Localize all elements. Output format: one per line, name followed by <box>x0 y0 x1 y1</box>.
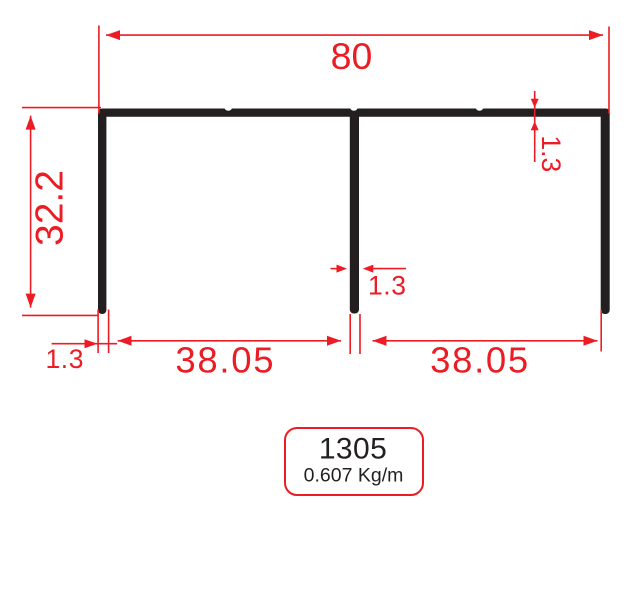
svg-text:0.607 Kg/m: 0.607 Kg/m <box>304 465 404 487</box>
svg-text:80: 80 <box>331 35 373 77</box>
svg-text:1.3: 1.3 <box>45 344 84 374</box>
svg-text:38.05: 38.05 <box>175 340 275 381</box>
svg-text:38.05: 38.05 <box>430 340 530 381</box>
svg-text:32.2: 32.2 <box>29 170 72 246</box>
svg-text:1305: 1305 <box>319 433 387 466</box>
svg-text:1.3: 1.3 <box>536 135 566 172</box>
svg-text:1.3: 1.3 <box>368 271 407 301</box>
